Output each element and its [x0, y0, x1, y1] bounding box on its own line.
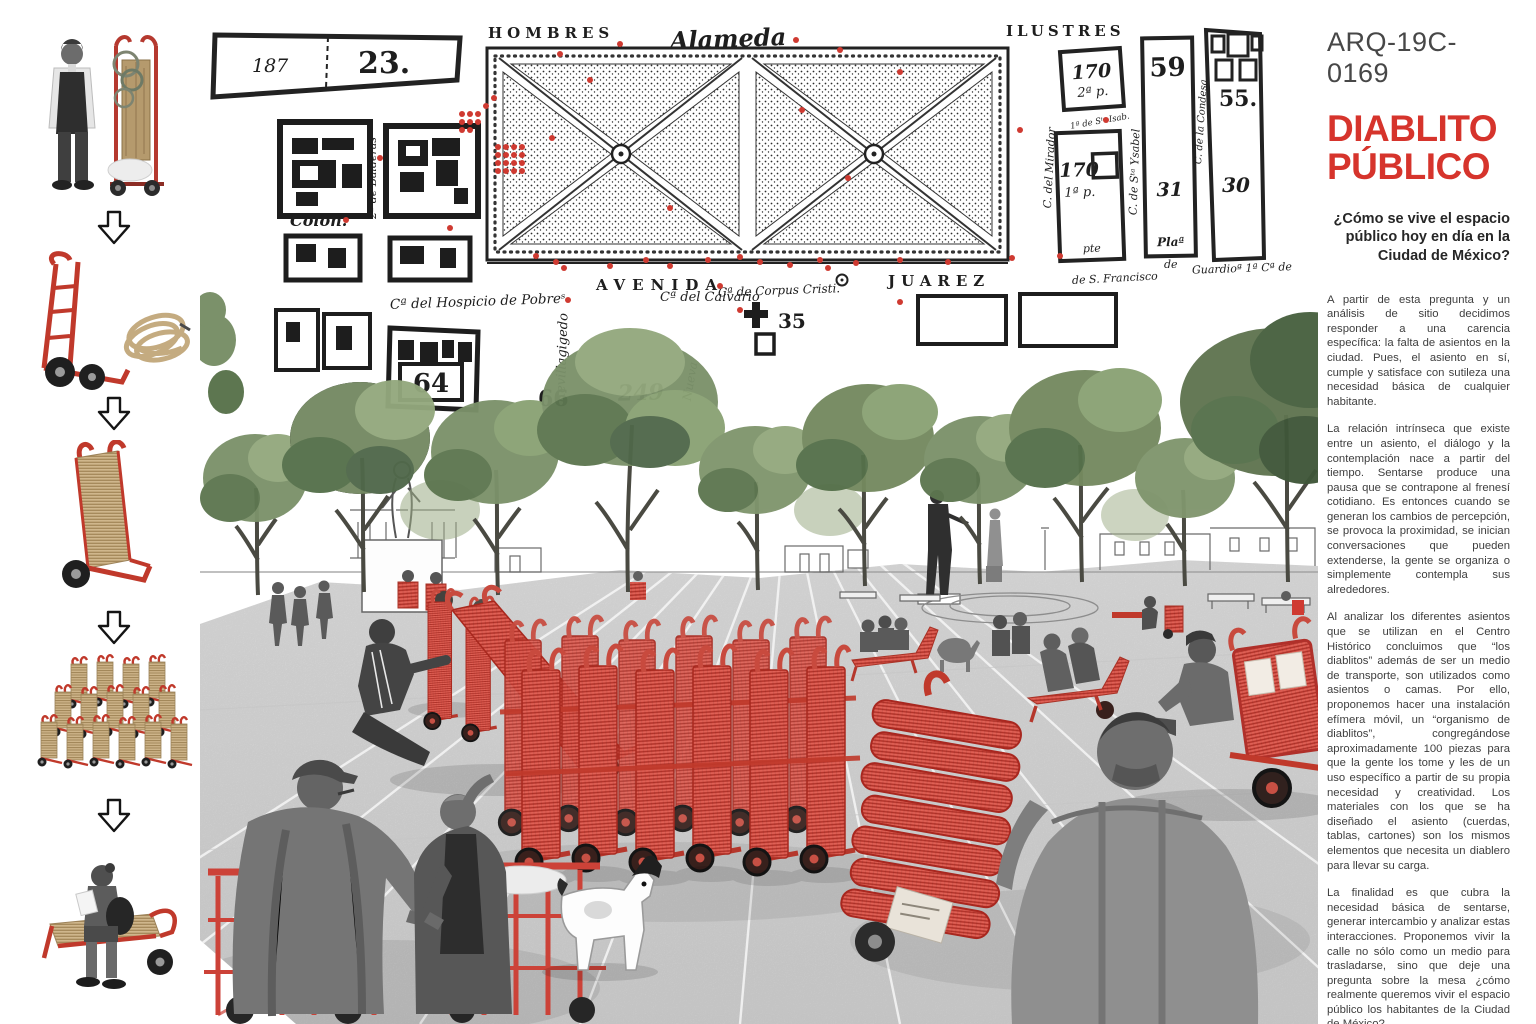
map-label-35: 35: [778, 309, 806, 333]
paragraph-3: Al analizar los diferentes asientos que …: [1327, 610, 1510, 873]
map-label-55: 55.: [1219, 86, 1257, 112]
alameda-collage: 187 23. HOMBRES Alameda ILUSTRES: [200, 10, 1318, 1024]
map-label-187: 187: [252, 55, 289, 77]
map-label-colon: Colon.: [290, 211, 347, 230]
small-statue: [986, 509, 1003, 583]
page-title: DIABLITO PÚBLICO: [1327, 110, 1510, 187]
map-label-juarez: JUAREZ: [886, 272, 990, 290]
distant-pedestrians: [269, 581, 333, 647]
plaza-scene: [200, 292, 1318, 1024]
project-code: ARQ-19C-0169: [1327, 27, 1510, 89]
map-label-170-1-sub: 1ª p.: [1064, 185, 1096, 201]
person-sitting-on-diablito-icon: [28, 842, 198, 1000]
project-description: A partir de esta pregunta y un análisis …: [1327, 293, 1510, 1024]
map-label-plaza: Plaª: [1156, 235, 1185, 249]
map-label-30: 30: [1222, 173, 1250, 197]
text-column: ARQ-19C-0169 DIABLITO PÚBLICO ¿Cómo se v…: [1327, 0, 1510, 1024]
rope-woven-diablito-icon: [40, 440, 170, 602]
map-label-170-2-sub: 2ª p.: [1076, 84, 1109, 101]
paragraph-1: A partir de esta pregunta y un análisis …: [1327, 293, 1510, 410]
map-label-23: 23.: [358, 46, 410, 81]
historic-alameda-map: 187 23. HOMBRES Alameda ILUSTRES: [213, 22, 1293, 412]
diablito-cluster-icon: [24, 652, 200, 790]
map-label-balderas: 2ª de Balderas: [366, 137, 379, 220]
map-label-hospicio: Cª del Hospicio de Pobreˢ: [390, 291, 566, 313]
down-arrow-icon: [96, 396, 132, 432]
map-label-plaza-de: de: [1164, 258, 1178, 271]
map-label-sta-ysabel: C. de Sᵗᵃ Ysabel: [1126, 128, 1142, 215]
red-handtruck-and-rope-icon: [24, 250, 206, 392]
map-label-sta-isab: 1ª de Sᵗᵃ Isab.: [1070, 112, 1131, 132]
map-label-ilustres: ILUSTRES: [1006, 22, 1125, 40]
paragraph-2: La relación intrínseca que existe entre …: [1327, 422, 1510, 597]
map-label-hombres: HOMBRES: [488, 24, 614, 42]
title-line-2: PÚBLICO: [1327, 148, 1510, 186]
map-label-170-2: 170: [1071, 60, 1112, 85]
map-label-59: 59: [1149, 53, 1186, 84]
map-label-pte: pte: [1083, 242, 1102, 256]
map-label-31: 31: [1156, 179, 1183, 201]
title-line-1: DIABLITO: [1327, 110, 1510, 148]
diablero-with-loaded-diablito-icon: [32, 32, 182, 202]
map-label-guardia: Guardioª 1ª Cª de: [1192, 260, 1293, 276]
competition-board: 187 23. HOMBRES Alameda ILUSTRES: [0, 0, 1536, 1024]
process-rail: [18, 0, 203, 1024]
map-label-corpus: Cª de Corpus Cristi.: [718, 281, 841, 299]
map-label-sfrancisco: de S. Francisco: [1072, 269, 1159, 286]
lead-question: ¿Cómo se vive el espacio público hoy en …: [1327, 210, 1510, 266]
down-arrow-icon: [96, 210, 132, 246]
paragraph-4: La finalidad es que cubra la necesidad b…: [1327, 886, 1510, 1024]
down-arrow-icon: [96, 798, 132, 834]
down-arrow-icon: [96, 610, 132, 646]
